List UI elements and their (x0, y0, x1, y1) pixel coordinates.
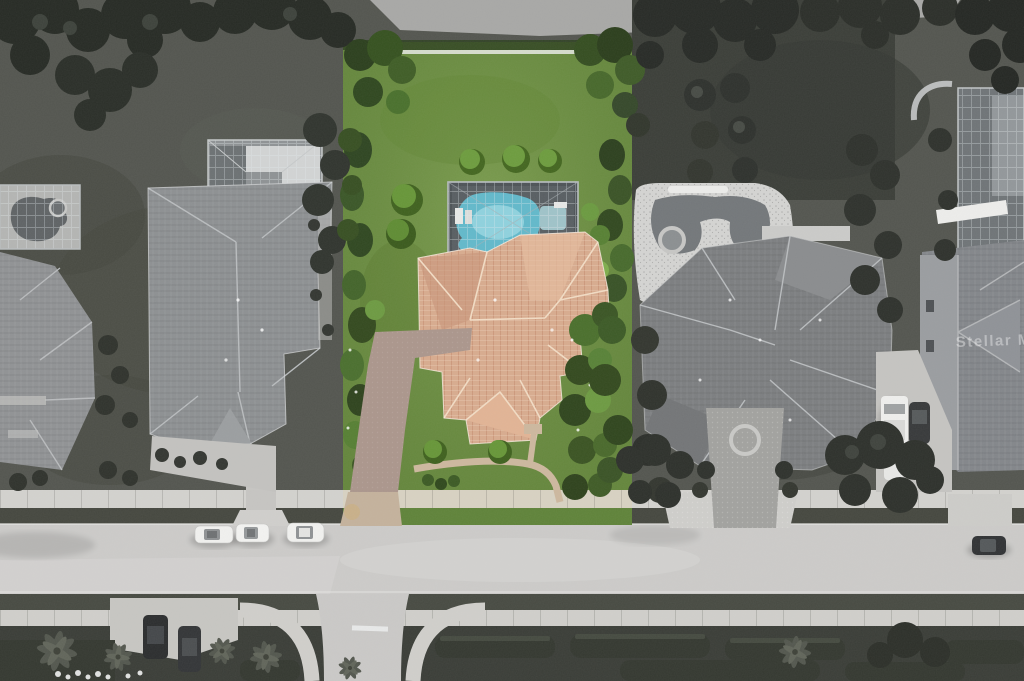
aerial-photo-canvas: Stellar MLS (0, 0, 1024, 681)
film-grain-overlay (0, 0, 1024, 681)
aerial-photo: Stellar MLS (0, 0, 1024, 681)
